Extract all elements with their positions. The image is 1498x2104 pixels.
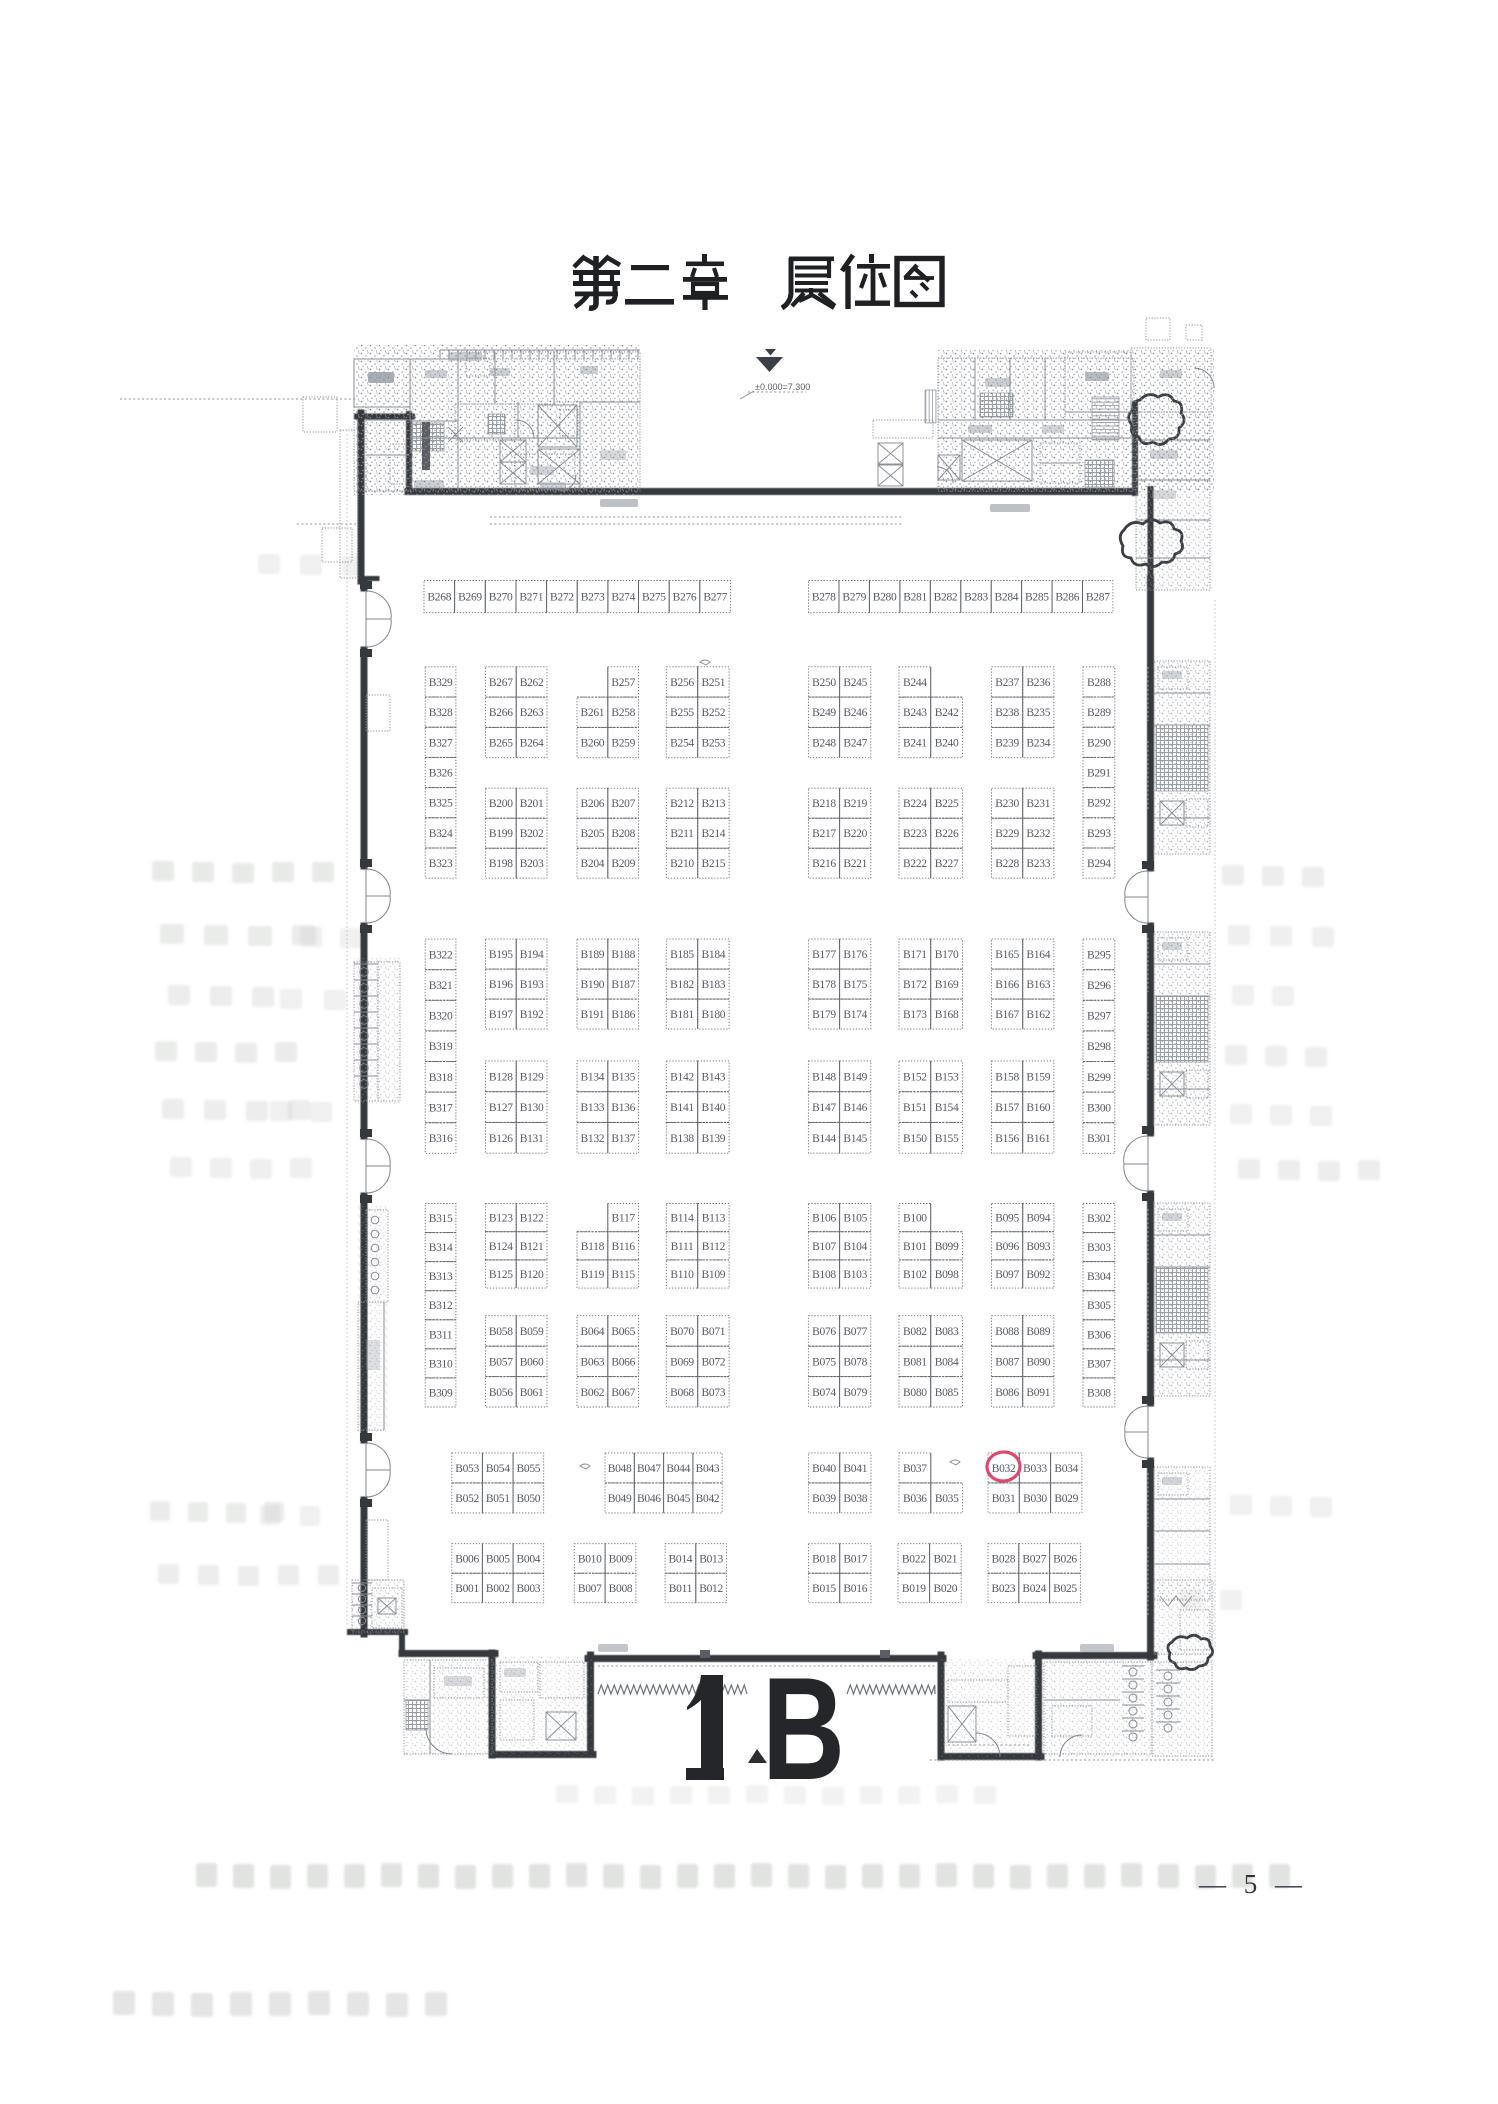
- svg-text:B297: B297: [1087, 1011, 1111, 1023]
- svg-text:B215: B215: [702, 858, 726, 870]
- svg-text:B064: B064: [581, 1326, 605, 1338]
- svg-text:B133: B133: [581, 1102, 605, 1114]
- svg-text:B046: B046: [637, 1493, 661, 1505]
- svg-text:B006: B006: [455, 1554, 479, 1566]
- svg-text:B035: B035: [935, 1493, 959, 1505]
- svg-text:B024: B024: [1022, 1583, 1046, 1595]
- svg-text:B141: B141: [670, 1102, 694, 1114]
- svg-text:B292: B292: [1087, 798, 1111, 810]
- svg-text:B325: B325: [429, 798, 453, 810]
- svg-text:B221: B221: [843, 858, 867, 870]
- svg-text:B155: B155: [935, 1133, 959, 1145]
- svg-text:B315: B315: [429, 1213, 453, 1225]
- svg-text:B070: B070: [670, 1326, 694, 1338]
- svg-text:B: B: [762, 1647, 845, 1810]
- svg-text:B300: B300: [1087, 1102, 1111, 1114]
- svg-text:B129: B129: [520, 1071, 544, 1083]
- svg-text:B185: B185: [670, 949, 694, 961]
- svg-text:B048: B048: [608, 1463, 632, 1475]
- svg-text:B100: B100: [903, 1213, 927, 1225]
- svg-text:B264: B264: [520, 738, 544, 750]
- svg-text:B052: B052: [455, 1493, 479, 1505]
- svg-text:B313: B313: [429, 1271, 453, 1283]
- svg-text:B226: B226: [935, 828, 959, 840]
- svg-text:B319: B319: [429, 1041, 453, 1053]
- svg-text:B194: B194: [520, 949, 544, 961]
- svg-text:B144: B144: [812, 1133, 836, 1145]
- svg-text:B012: B012: [699, 1583, 723, 1595]
- svg-text:B108: B108: [812, 1269, 836, 1281]
- svg-text:B079: B079: [843, 1387, 867, 1399]
- svg-text:B211: B211: [670, 828, 694, 840]
- svg-text:B010: B010: [578, 1554, 602, 1566]
- svg-text:B101: B101: [903, 1241, 927, 1253]
- svg-text:B120: B120: [520, 1269, 544, 1281]
- svg-text:B172: B172: [903, 979, 927, 991]
- svg-text:B084: B084: [935, 1356, 959, 1368]
- svg-text:B110: B110: [670, 1269, 694, 1281]
- svg-text:B067: B067: [611, 1387, 635, 1399]
- svg-text:B107: B107: [812, 1241, 836, 1253]
- svg-text:B320: B320: [429, 1011, 453, 1023]
- svg-text:B053: B053: [455, 1463, 479, 1475]
- svg-text:B188: B188: [611, 949, 635, 961]
- svg-text:B167: B167: [995, 1009, 1019, 1021]
- svg-text:B307: B307: [1087, 1358, 1111, 1370]
- svg-text:B210: B210: [670, 858, 694, 870]
- svg-text:B177: B177: [812, 949, 836, 961]
- svg-text:B139: B139: [702, 1133, 726, 1145]
- svg-text:B284: B284: [995, 592, 1019, 604]
- svg-text:B126: B126: [489, 1133, 513, 1145]
- svg-text:B234: B234: [1026, 738, 1050, 750]
- svg-text:B217: B217: [812, 828, 836, 840]
- svg-text:B255: B255: [670, 707, 694, 719]
- svg-text:B034: B034: [1054, 1463, 1078, 1475]
- svg-text:B047: B047: [637, 1463, 661, 1475]
- svg-text:B246: B246: [843, 707, 867, 719]
- svg-text:B180: B180: [702, 1009, 726, 1021]
- svg-text:B023: B023: [992, 1583, 1016, 1595]
- svg-text:B083: B083: [935, 1326, 959, 1338]
- svg-text:B093: B093: [1026, 1241, 1050, 1253]
- svg-text:B308: B308: [1087, 1388, 1111, 1400]
- svg-text:±0.000=7.300: ±0.000=7.300: [755, 382, 810, 392]
- svg-text:B163: B163: [1026, 979, 1050, 991]
- svg-text:B105: B105: [843, 1213, 867, 1225]
- svg-text:B213: B213: [702, 798, 726, 810]
- svg-text:B326: B326: [429, 768, 453, 780]
- svg-text:B301: B301: [1087, 1133, 1111, 1145]
- svg-text:B223: B223: [903, 828, 927, 840]
- svg-text:B276: B276: [673, 592, 697, 604]
- svg-text:B088: B088: [995, 1326, 1019, 1338]
- svg-text:B069: B069: [670, 1356, 694, 1368]
- svg-text:B205: B205: [581, 828, 605, 840]
- svg-text:B148: B148: [812, 1071, 836, 1083]
- svg-text:B182: B182: [670, 979, 694, 991]
- svg-text:B016: B016: [843, 1583, 867, 1595]
- svg-text:B099: B099: [935, 1241, 959, 1253]
- svg-text:B056: B056: [489, 1387, 513, 1399]
- svg-text:B304: B304: [1087, 1271, 1111, 1283]
- svg-text:B022: B022: [902, 1554, 926, 1566]
- svg-text:B082: B082: [903, 1326, 927, 1338]
- svg-text:B055: B055: [517, 1463, 541, 1475]
- svg-text:B311: B311: [429, 1329, 453, 1341]
- svg-text:B029: B029: [1054, 1493, 1078, 1505]
- svg-text:B288: B288: [1087, 677, 1111, 689]
- svg-text:B113: B113: [702, 1213, 726, 1225]
- svg-text:B030: B030: [1023, 1493, 1047, 1505]
- svg-text:B150: B150: [903, 1133, 927, 1145]
- svg-text:B191: B191: [581, 1009, 605, 1021]
- svg-text:B219: B219: [843, 798, 867, 810]
- svg-text:B202: B202: [520, 828, 544, 840]
- svg-text:B257: B257: [611, 677, 635, 689]
- svg-text:B209: B209: [611, 858, 635, 870]
- svg-text:B037: B037: [903, 1463, 927, 1475]
- svg-text:B027: B027: [1022, 1554, 1046, 1566]
- svg-text:B018: B018: [812, 1554, 836, 1566]
- svg-text:B135: B135: [611, 1071, 635, 1083]
- svg-text:B112: B112: [702, 1241, 726, 1253]
- svg-text:B285: B285: [1025, 592, 1049, 604]
- svg-text:B318: B318: [429, 1072, 453, 1084]
- svg-text:B233: B233: [1026, 858, 1050, 870]
- svg-text:B115: B115: [612, 1269, 636, 1281]
- svg-text:B275: B275: [642, 592, 666, 604]
- svg-text:B204: B204: [581, 858, 605, 870]
- svg-text:B196: B196: [489, 979, 513, 991]
- svg-text:B060: B060: [520, 1356, 544, 1368]
- svg-text:B058: B058: [489, 1326, 513, 1338]
- svg-text:B162: B162: [1026, 1009, 1050, 1021]
- svg-text:B028: B028: [992, 1554, 1016, 1566]
- svg-text:B109: B109: [702, 1269, 726, 1281]
- svg-text:B119: B119: [581, 1269, 605, 1281]
- svg-text:B051: B051: [486, 1493, 510, 1505]
- svg-text:B179: B179: [812, 1009, 836, 1021]
- svg-text:B201: B201: [520, 798, 544, 810]
- svg-text:B274: B274: [611, 592, 635, 604]
- svg-text:B256: B256: [670, 677, 694, 689]
- svg-text:B200: B200: [489, 798, 513, 810]
- svg-text:B271: B271: [519, 592, 543, 604]
- svg-text:B238: B238: [995, 707, 1019, 719]
- svg-text:B247: B247: [843, 738, 867, 750]
- svg-text:B317: B317: [429, 1102, 453, 1114]
- svg-text:B096: B096: [995, 1241, 1019, 1253]
- svg-text:B042: B042: [696, 1493, 720, 1505]
- svg-text:B237: B237: [995, 677, 1019, 689]
- svg-text:B017: B017: [843, 1554, 867, 1566]
- svg-text:B260: B260: [581, 738, 605, 750]
- svg-text:B136: B136: [611, 1102, 635, 1114]
- svg-text:B294: B294: [1087, 858, 1111, 870]
- svg-text:B114: B114: [670, 1213, 694, 1225]
- svg-text:B267: B267: [489, 677, 513, 689]
- svg-text:B282: B282: [934, 592, 958, 604]
- svg-text:B059: B059: [520, 1326, 544, 1338]
- svg-text:B324: B324: [429, 828, 453, 840]
- svg-text:B128: B128: [489, 1071, 513, 1083]
- svg-text:B248: B248: [812, 738, 836, 750]
- svg-text:B302: B302: [1087, 1213, 1111, 1225]
- svg-text:B239: B239: [995, 738, 1019, 750]
- svg-text:B117: B117: [612, 1213, 636, 1225]
- svg-text:B244: B244: [903, 677, 927, 689]
- svg-text:B156: B156: [995, 1133, 1019, 1145]
- svg-text:B253: B253: [702, 738, 726, 750]
- svg-text:B263: B263: [520, 707, 544, 719]
- svg-text:B090: B090: [1026, 1356, 1050, 1368]
- svg-text:B142: B142: [670, 1071, 694, 1083]
- svg-text:B123: B123: [489, 1213, 513, 1225]
- svg-text:B181: B181: [670, 1009, 694, 1021]
- svg-text:B145: B145: [843, 1133, 867, 1145]
- svg-text:B054: B054: [486, 1463, 510, 1475]
- svg-text:B095: B095: [995, 1213, 1019, 1225]
- svg-text:B127: B127: [489, 1102, 513, 1114]
- svg-text:B061: B061: [520, 1387, 544, 1399]
- svg-text:B074: B074: [812, 1387, 836, 1399]
- svg-text:B159: B159: [1026, 1071, 1050, 1083]
- svg-text:B038: B038: [843, 1493, 867, 1505]
- svg-text:B212: B212: [670, 798, 694, 810]
- svg-text:B254: B254: [670, 738, 694, 750]
- svg-text:B002: B002: [486, 1583, 510, 1595]
- svg-text:B157: B157: [995, 1102, 1019, 1114]
- svg-text:B106: B106: [812, 1213, 836, 1225]
- svg-text:B057: B057: [489, 1356, 513, 1368]
- svg-text:B091: B091: [1026, 1387, 1050, 1399]
- svg-text:B293: B293: [1087, 828, 1111, 840]
- svg-text:B031: B031: [992, 1493, 1016, 1505]
- svg-text:B131: B131: [520, 1133, 544, 1145]
- svg-text:B322: B322: [429, 949, 453, 961]
- svg-text:B207: B207: [611, 798, 635, 810]
- svg-text:— 5 —: — 5 —: [1198, 1869, 1303, 1899]
- svg-text:B124: B124: [489, 1241, 513, 1253]
- svg-text:B214: B214: [702, 828, 726, 840]
- svg-text:B065: B065: [611, 1326, 635, 1338]
- svg-text:B193: B193: [520, 979, 544, 991]
- svg-text:B165: B165: [995, 949, 1019, 961]
- svg-text:B097: B097: [995, 1269, 1019, 1281]
- svg-text:B137: B137: [611, 1133, 635, 1145]
- svg-text:B138: B138: [670, 1133, 694, 1145]
- svg-text:B081: B081: [903, 1356, 927, 1368]
- svg-text:B272: B272: [550, 592, 574, 604]
- svg-text:B151: B151: [903, 1102, 927, 1114]
- svg-text:B160: B160: [1026, 1102, 1050, 1114]
- svg-text:B036: B036: [903, 1493, 927, 1505]
- svg-text:B230: B230: [995, 798, 1019, 810]
- svg-text:B268: B268: [427, 592, 451, 604]
- svg-text:B158: B158: [995, 1071, 1019, 1083]
- svg-text:B235: B235: [1026, 707, 1050, 719]
- svg-text:B281: B281: [903, 592, 927, 604]
- svg-text:B227: B227: [935, 858, 959, 870]
- svg-text:B184: B184: [702, 949, 726, 961]
- svg-text:B147: B147: [812, 1102, 836, 1114]
- svg-text:B169: B169: [935, 979, 959, 991]
- svg-text:B236: B236: [1026, 677, 1050, 689]
- svg-text:B198: B198: [489, 858, 513, 870]
- svg-text:B299: B299: [1087, 1072, 1111, 1084]
- svg-text:B303: B303: [1087, 1242, 1111, 1254]
- svg-text:B050: B050: [517, 1493, 541, 1505]
- svg-text:B192: B192: [520, 1009, 544, 1021]
- svg-text:B224: B224: [903, 798, 927, 810]
- svg-text:B171: B171: [903, 949, 927, 961]
- svg-text:B329: B329: [429, 677, 453, 689]
- svg-text:B085: B085: [935, 1387, 959, 1399]
- svg-text:B232: B232: [1026, 828, 1050, 840]
- svg-text:B305: B305: [1087, 1300, 1111, 1312]
- svg-text:B049: B049: [608, 1493, 632, 1505]
- svg-text:B134: B134: [581, 1071, 605, 1083]
- svg-text:B289: B289: [1087, 707, 1111, 719]
- svg-text:B143: B143: [702, 1071, 726, 1083]
- svg-text:B153: B153: [935, 1071, 959, 1083]
- svg-text:B152: B152: [903, 1071, 927, 1083]
- svg-text:B183: B183: [702, 979, 726, 991]
- svg-text:B026: B026: [1053, 1554, 1077, 1566]
- svg-text:B298: B298: [1087, 1041, 1111, 1053]
- svg-text:B312: B312: [429, 1300, 453, 1312]
- svg-text:B203: B203: [520, 858, 544, 870]
- svg-text:B071: B071: [702, 1326, 726, 1338]
- svg-text:B178: B178: [812, 979, 836, 991]
- svg-text:B240: B240: [935, 738, 959, 750]
- svg-text:B068: B068: [670, 1387, 694, 1399]
- svg-text:B076: B076: [812, 1326, 836, 1338]
- svg-text:B309: B309: [429, 1388, 453, 1400]
- svg-text:B066: B066: [611, 1356, 635, 1368]
- svg-text:B280: B280: [873, 592, 897, 604]
- svg-text:B261: B261: [581, 707, 605, 719]
- svg-text:B328: B328: [429, 707, 453, 719]
- svg-text:B265: B265: [489, 738, 513, 750]
- svg-text:B269: B269: [458, 592, 482, 604]
- svg-text:B116: B116: [612, 1241, 636, 1253]
- svg-text:B220: B220: [843, 828, 867, 840]
- svg-text:B014: B014: [669, 1554, 693, 1566]
- svg-text:B118: B118: [581, 1241, 605, 1253]
- svg-text:B197: B197: [489, 1009, 513, 1021]
- svg-text:B195: B195: [489, 949, 513, 961]
- svg-text:B310: B310: [429, 1358, 453, 1370]
- svg-text:B216: B216: [812, 858, 836, 870]
- svg-text:B176: B176: [843, 949, 867, 961]
- svg-text:B125: B125: [489, 1269, 513, 1281]
- svg-text:B295: B295: [1087, 949, 1111, 961]
- svg-text:B011: B011: [669, 1583, 693, 1595]
- svg-text:B004: B004: [517, 1554, 541, 1566]
- svg-text:B040: B040: [812, 1463, 836, 1475]
- svg-text:B077: B077: [843, 1326, 867, 1338]
- svg-text:B033: B033: [1023, 1463, 1047, 1475]
- svg-text:B130: B130: [520, 1102, 544, 1114]
- svg-text:B229: B229: [995, 828, 1019, 840]
- svg-text:B032: B032: [992, 1463, 1016, 1475]
- svg-text:B063: B063: [581, 1356, 605, 1368]
- svg-text:B021: B021: [934, 1554, 958, 1566]
- svg-text:B279: B279: [842, 592, 866, 604]
- svg-text:B005: B005: [486, 1554, 510, 1566]
- svg-text:B146: B146: [843, 1102, 867, 1114]
- svg-text:B290: B290: [1087, 737, 1111, 749]
- svg-text:B089: B089: [1026, 1326, 1050, 1338]
- svg-text:B190: B190: [581, 979, 605, 991]
- svg-text:B094: B094: [1026, 1213, 1050, 1225]
- svg-text:B208: B208: [611, 828, 635, 840]
- svg-text:B132: B132: [581, 1133, 605, 1145]
- svg-text:B087: B087: [995, 1356, 1019, 1368]
- svg-text:B327: B327: [429, 737, 453, 749]
- svg-text:B003: B003: [517, 1583, 541, 1595]
- svg-text:B283: B283: [964, 592, 988, 604]
- svg-text:B072: B072: [702, 1356, 726, 1368]
- svg-text:B187: B187: [611, 979, 635, 991]
- svg-text:B044: B044: [666, 1463, 690, 1475]
- svg-text:B009: B009: [609, 1554, 633, 1566]
- svg-text:B225: B225: [935, 798, 959, 810]
- svg-text:B273: B273: [581, 592, 605, 604]
- svg-text:B251: B251: [702, 677, 726, 689]
- svg-text:B189: B189: [581, 949, 605, 961]
- svg-text:B168: B168: [935, 1009, 959, 1021]
- svg-text:B008: B008: [609, 1583, 633, 1595]
- svg-text:B249: B249: [812, 707, 836, 719]
- svg-text:B321: B321: [429, 980, 453, 992]
- svg-text:B020: B020: [934, 1583, 958, 1595]
- svg-text:B043: B043: [696, 1463, 720, 1475]
- svg-text:B242: B242: [935, 707, 959, 719]
- svg-text:B173: B173: [903, 1009, 927, 1021]
- svg-text:B111: B111: [671, 1241, 694, 1253]
- svg-text:B277: B277: [703, 592, 727, 604]
- svg-text:B080: B080: [903, 1387, 927, 1399]
- svg-text:B102: B102: [903, 1269, 927, 1281]
- svg-text:B259: B259: [611, 738, 635, 750]
- svg-text:B164: B164: [1026, 949, 1050, 961]
- svg-text:B045: B045: [666, 1493, 690, 1505]
- svg-text:B075: B075: [812, 1356, 836, 1368]
- svg-text:B166: B166: [995, 979, 1019, 991]
- svg-text:B314: B314: [429, 1242, 453, 1254]
- svg-text:B296: B296: [1087, 980, 1111, 992]
- svg-text:B019: B019: [902, 1583, 926, 1595]
- svg-text:B154: B154: [935, 1102, 959, 1114]
- svg-text:B218: B218: [812, 798, 836, 810]
- svg-text:B291: B291: [1087, 768, 1111, 780]
- svg-text:B103: B103: [843, 1269, 867, 1281]
- svg-text:B170: B170: [935, 949, 959, 961]
- svg-text:B323: B323: [429, 858, 453, 870]
- svg-text:B258: B258: [611, 707, 635, 719]
- svg-text:B306: B306: [1087, 1329, 1111, 1341]
- svg-text:B013: B013: [699, 1554, 723, 1566]
- svg-text:B039: B039: [812, 1493, 836, 1505]
- svg-text:B104: B104: [843, 1241, 867, 1253]
- svg-text:B174: B174: [843, 1009, 867, 1021]
- svg-text:B231: B231: [1026, 798, 1050, 810]
- svg-text:B278: B278: [812, 592, 836, 604]
- svg-text:B121: B121: [520, 1241, 544, 1253]
